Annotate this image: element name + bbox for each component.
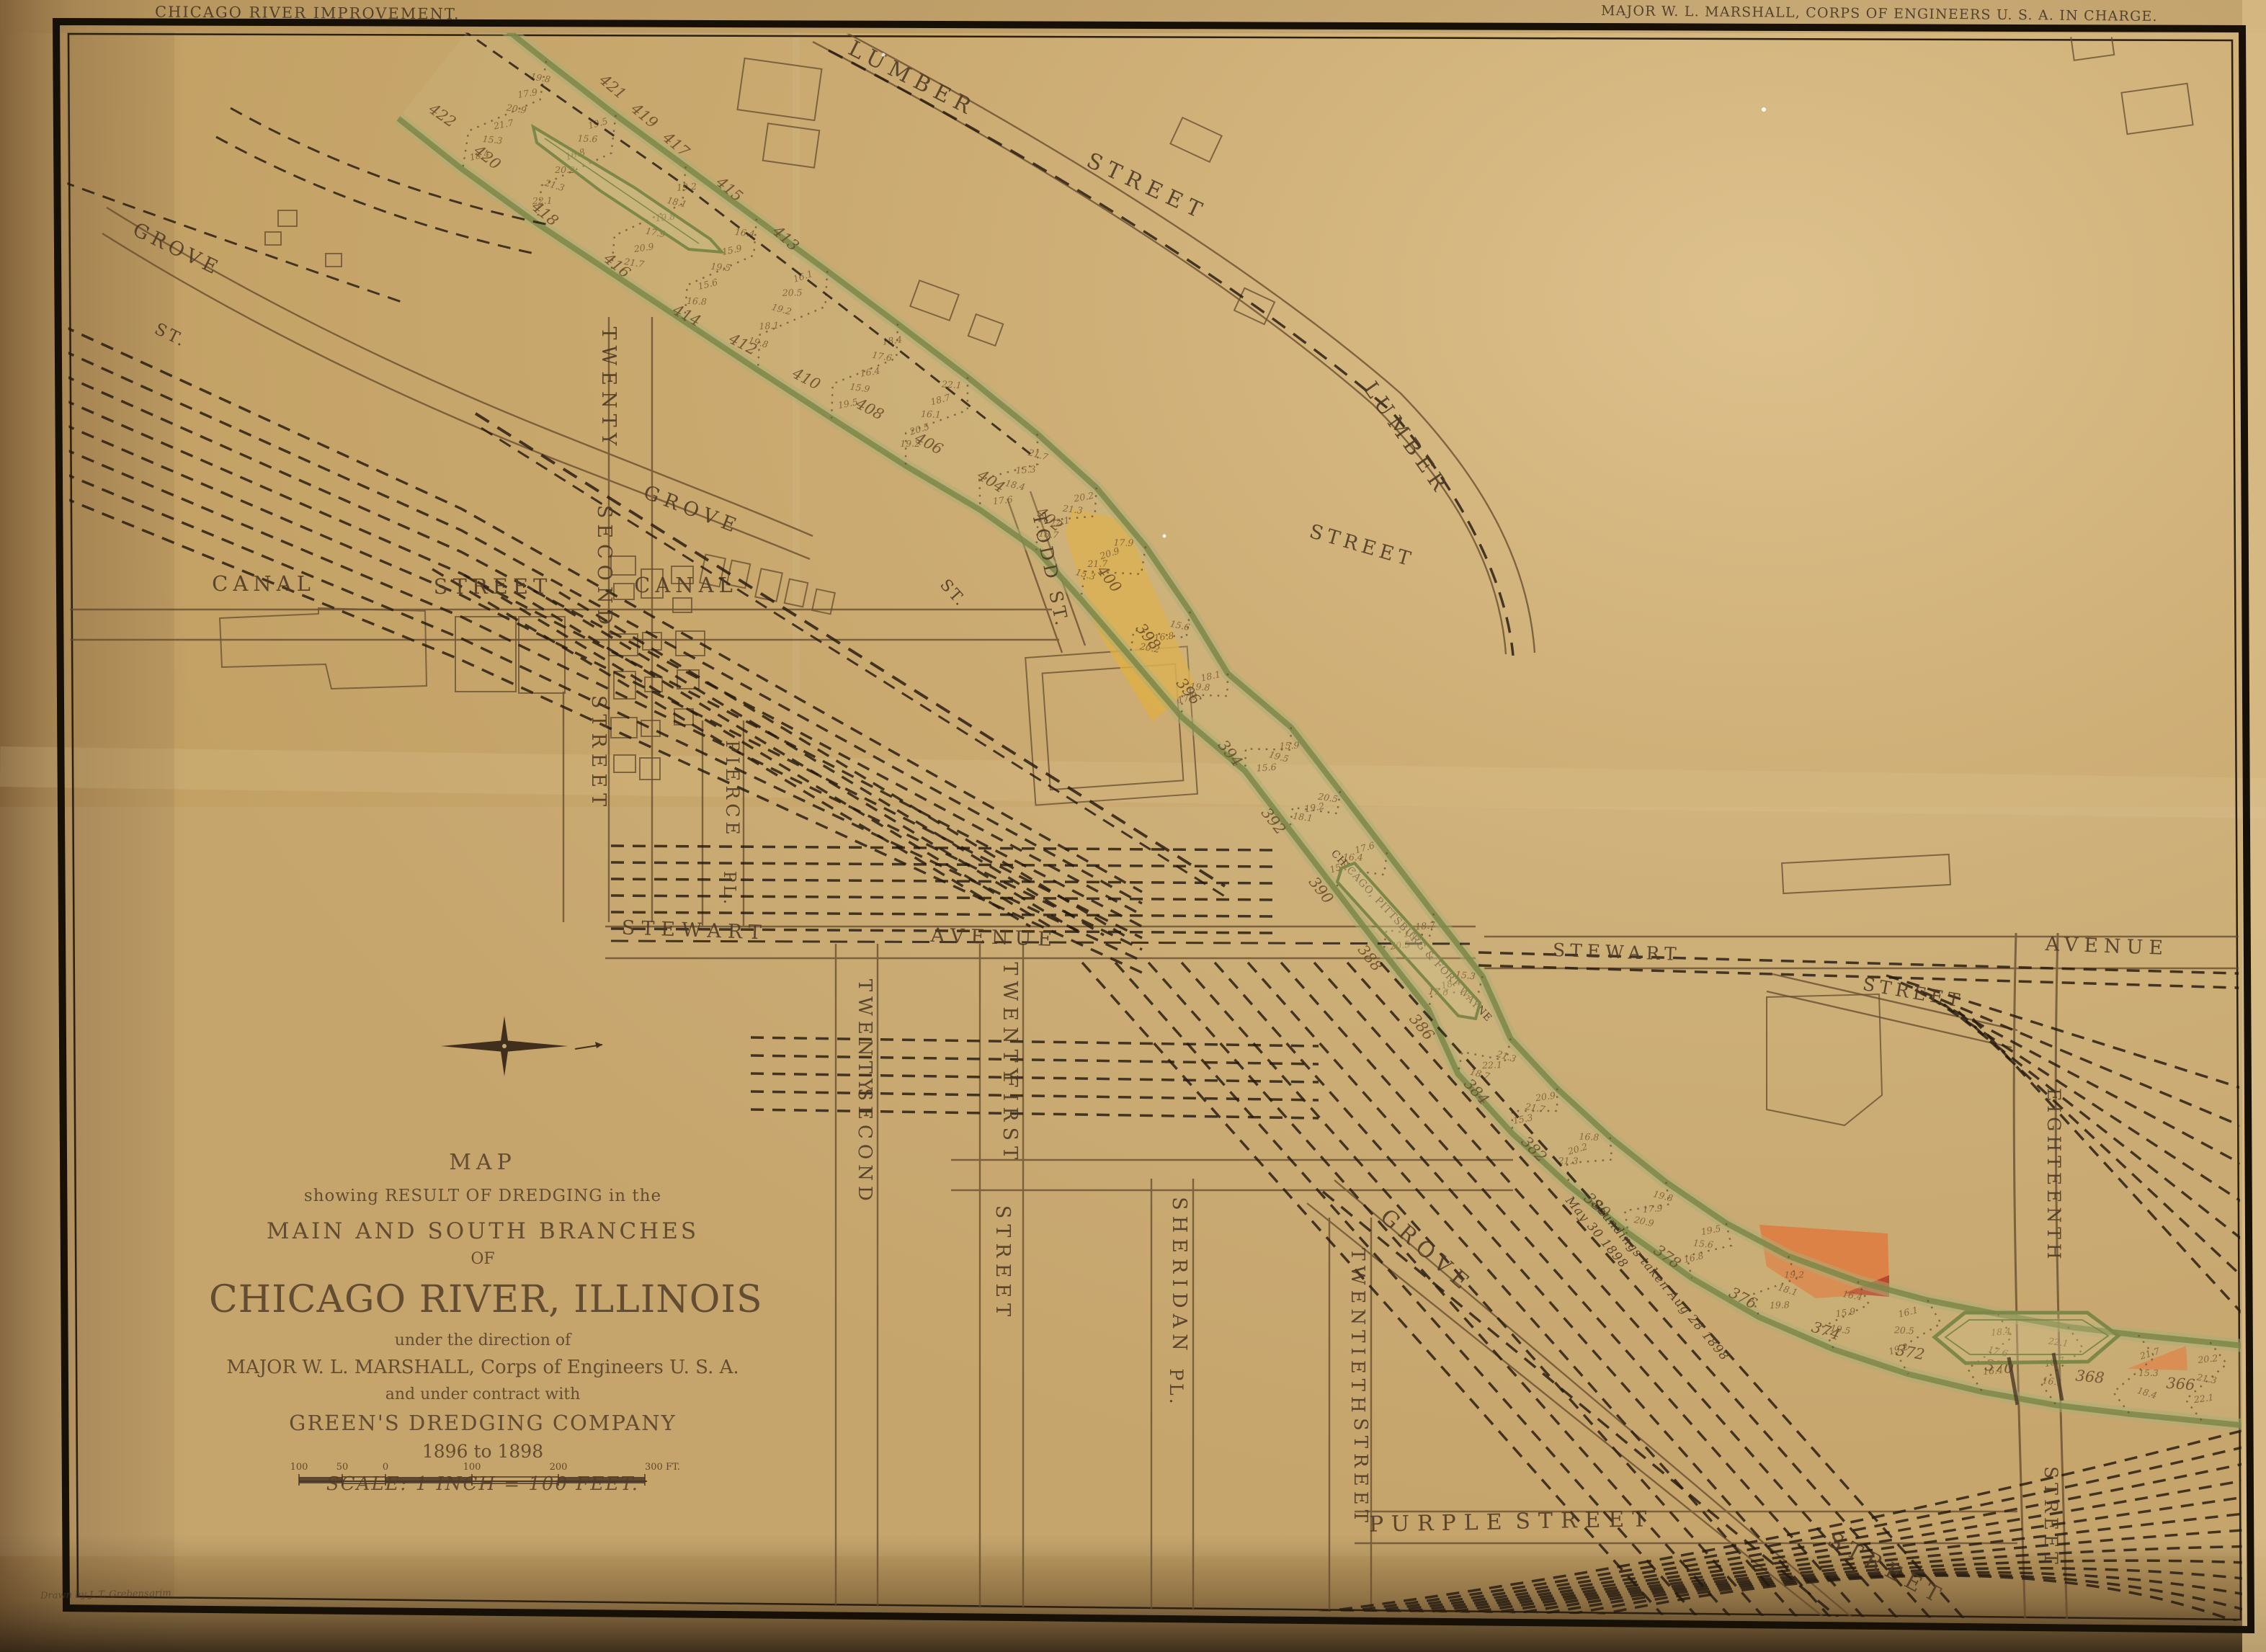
sounding-number: 15.3 [2138, 1367, 2159, 1378]
street-label: STREET [1350, 1418, 1371, 1527]
sounding-number: 17.6 [992, 494, 1013, 506]
street-label: AVENUE [929, 924, 1058, 951]
sounding-number: 16.8 [1579, 1131, 1600, 1143]
sounding-number: 18.7 [1415, 919, 1436, 932]
title-line-map: MAP [209, 1150, 757, 1175]
sounding-number: 15.9 [1279, 740, 1299, 751]
street-label: TWENTY [999, 963, 1021, 1087]
street-label: PIERCE [722, 740, 743, 839]
street-label: STREET [1515, 1506, 1655, 1534]
street-label: EIGHTEENTH [2043, 1088, 2064, 1263]
street-label: STREET [434, 574, 553, 599]
sounding-number: 16.1 [921, 408, 941, 420]
title-block: MAP showing RESULT OF DREDGING in the MA… [209, 1150, 757, 1495]
sounding-number: 15.6 [577, 133, 597, 144]
street-label: SECOND [854, 1088, 875, 1206]
street-label: CANAL [634, 573, 738, 597]
street-label: SHERIDAN [1168, 1197, 1190, 1357]
sounding-number: 18.1 [759, 320, 780, 331]
sounding-number: 15.6 [1256, 762, 1277, 774]
sounding-number: 19.8 [1770, 1299, 1790, 1311]
title-line-branches: MAIN AND SOUTH BRANCHES [209, 1218, 757, 1244]
street-label: TWENTIETH [1347, 1248, 1368, 1417]
street-label: FIRST [999, 1074, 1021, 1165]
sounding-number: 22.1 [940, 378, 962, 390]
sounding-number: 20.2 [2197, 1352, 2218, 1365]
street-label: PURPLE [1369, 1509, 1510, 1537]
sounding-number: 15.3 [1015, 463, 1036, 475]
street-label: STREET [991, 1205, 1014, 1322]
sounding-number: 20.5 [782, 287, 803, 298]
street-label: STREET [2040, 1466, 2061, 1568]
turning-basin [1935, 1313, 2118, 1363]
sounding-number: 17.9 [1642, 1202, 1663, 1215]
title-line-years: 1896 to 1898 [209, 1441, 757, 1462]
map-photograph: 19.817.920.921.715.318.419.515.616.820.2… [0, 0, 2266, 1652]
title-line-of: OF [209, 1250, 757, 1268]
sounding-number: 16.8 [687, 295, 708, 307]
title-main: CHICAGO RIVER, ILLINOIS [209, 1278, 757, 1321]
title-line-showing: showing RESULT OF DREDGING in the [209, 1187, 757, 1205]
title-line-contract: and under contract with [209, 1385, 757, 1403]
street-label: SECOND [593, 505, 615, 630]
street-label: TWENTY [597, 327, 620, 452]
station-number: 366 [2166, 1375, 2196, 1394]
station-number: 368 [2075, 1367, 2105, 1386]
sounding-number: 15.6 [1692, 1237, 1713, 1250]
title-line-direction: under the direction of [209, 1331, 757, 1349]
street-label: CANAL [212, 571, 316, 596]
scale-text: SCALE: 1 INCH = 100 FEET. [209, 1473, 757, 1495]
sounding-number: 19.5 [710, 261, 731, 273]
title-line-marshall: MAJOR W. L. MARSHALL, Corps of Engineers… [209, 1357, 757, 1378]
street-label: AVENUE [2044, 933, 2169, 960]
sounding-number: 19.2 [1784, 1269, 1804, 1280]
header-left-title: CHICAGO RIVER IMPROVEMENT. [155, 4, 460, 23]
sounding-number: 20.5 [1893, 1324, 1915, 1336]
street-label: STREET [587, 695, 610, 812]
street-label: PL. [1166, 1368, 1187, 1406]
street-label: PL. [720, 871, 739, 907]
title-line-company: GREEN'S DREDGING COMPANY [209, 1411, 757, 1435]
street-label: TWENTY [854, 979, 875, 1096]
